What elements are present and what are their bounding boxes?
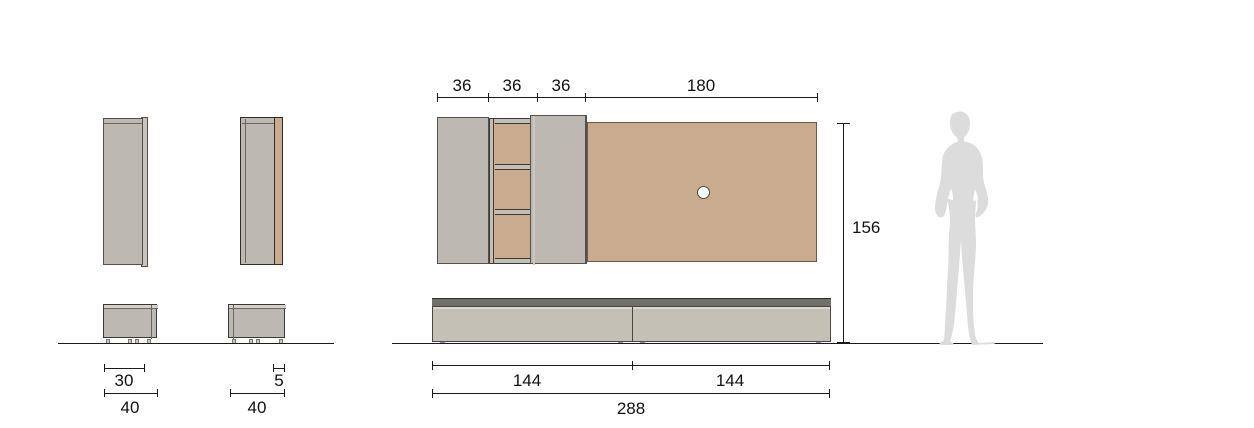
bench-top-face — [432, 298, 831, 306]
human-silhouette — [920, 110, 1020, 346]
wardrobe-door-left — [437, 117, 489, 264]
dim-tick — [157, 389, 158, 397]
column2-door-gap-line — [245, 119, 246, 263]
dim-tick — [437, 93, 438, 102]
dim-line-bottom-total — [432, 393, 830, 394]
dim-tick — [632, 361, 633, 370]
shelf-unit-side-frame — [490, 119, 494, 263]
tall-column-side-view-1 — [103, 117, 148, 268]
cable-hole-icon — [697, 186, 710, 199]
base-cabinet-side-view-1 — [103, 304, 159, 344]
column1-top-joint-line — [104, 123, 142, 124]
dim-tick — [585, 93, 586, 102]
base1-top-strip — [104, 305, 158, 309]
human-silhouette-shape — [935, 112, 995, 345]
dim-tick — [104, 364, 105, 372]
shelf-unit-top-frame — [495, 119, 535, 124]
base1-body — [103, 304, 157, 338]
dim-tick — [488, 93, 489, 102]
dim-tick — [144, 364, 145, 372]
bench-divider — [632, 307, 633, 341]
dim-tick — [432, 361, 433, 370]
dim-tick — [104, 389, 105, 397]
dim-label-36-1: 36 — [453, 77, 472, 94]
column1-door-panel — [103, 118, 143, 265]
door-right-edge-highlight — [533, 116, 535, 265]
tall-column-side-view-2 — [240, 117, 284, 266]
dim-label-36-3: 36 — [552, 77, 571, 94]
dim-label-180: 180 — [687, 77, 715, 94]
technical-drawing-canvas: 30 40 5 40 36 36 36 180 — [0, 0, 1254, 428]
dim-label-40-left: 40 — [121, 399, 140, 416]
dim-tick — [432, 389, 433, 398]
column2-body — [240, 117, 283, 265]
dim-label-40-right: 40 — [248, 399, 267, 416]
dim-tick — [230, 389, 231, 397]
dim-tick — [817, 93, 818, 102]
dim-line-30 — [104, 368, 145, 369]
dim-tick — [284, 389, 285, 397]
dim-label-156: 156 — [852, 219, 880, 236]
dim-label-5: 5 — [274, 372, 283, 389]
tv-back-panel — [587, 122, 817, 262]
bench-front — [432, 306, 831, 342]
dim-label-30: 30 — [115, 372, 134, 389]
dim-line-40-left — [104, 393, 158, 394]
shelf-1 — [495, 164, 535, 170]
base1-edge-line — [151, 305, 152, 339]
dim-tick — [284, 364, 285, 372]
dim-tick — [829, 389, 830, 398]
dim-tick — [537, 93, 538, 102]
open-shelf-unit — [489, 118, 536, 264]
dim-line-top — [437, 97, 818, 98]
dim-label-36-2: 36 — [503, 77, 522, 94]
dim-label-144-right: 144 — [716, 372, 744, 389]
shelf-unit-bottom-frame — [495, 258, 535, 263]
dim-tick — [837, 123, 850, 124]
dim-line-height — [843, 123, 844, 343]
base-cabinet-side-view-2 — [228, 304, 287, 344]
base2-body — [228, 304, 285, 338]
dim-line-40-right — [230, 393, 285, 394]
ground-line-left — [58, 343, 334, 344]
dim-tick — [829, 361, 830, 370]
shelf-2 — [495, 209, 535, 215]
dim-line-bottom-halves — [432, 365, 830, 366]
dim-label-144-left: 144 — [513, 372, 541, 389]
column2-back-panel-strip — [274, 118, 282, 264]
wardrobe-door-right — [530, 115, 587, 264]
base2-top-strip — [229, 305, 286, 309]
dim-label-288: 288 — [617, 400, 645, 417]
dim-tick — [837, 342, 850, 343]
base2-edge-line — [233, 305, 234, 339]
